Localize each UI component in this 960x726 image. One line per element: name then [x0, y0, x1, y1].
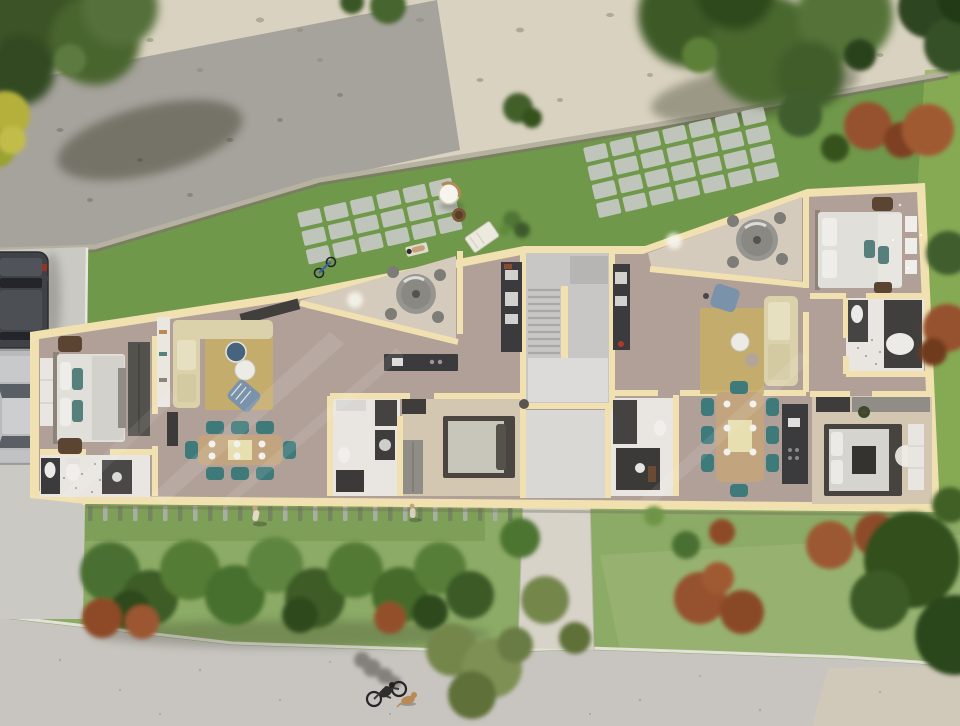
pillow-teal	[72, 368, 83, 390]
pillow-teal	[72, 400, 83, 422]
pillow	[831, 460, 843, 484]
outdoor-chair	[727, 215, 739, 227]
tree-leaf-accent	[54, 44, 86, 76]
coffee-table-taupe	[745, 353, 759, 367]
chair-teal	[701, 398, 714, 416]
suv-red-detail	[42, 264, 47, 271]
toilet	[66, 463, 80, 481]
coffee-table-white	[731, 333, 749, 351]
wardrobe-dark	[816, 397, 850, 412]
bed	[448, 421, 504, 473]
floor-lamp	[703, 293, 709, 299]
stair-divider-wall	[561, 286, 568, 358]
chair-teal	[256, 421, 274, 434]
tub	[886, 333, 914, 355]
stairwell	[523, 250, 612, 406]
outdoor-chair	[432, 311, 444, 323]
chair-teal	[730, 484, 748, 497]
pillow	[60, 362, 71, 390]
cabinet-dark	[402, 399, 426, 414]
toilet	[654, 420, 666, 436]
stair-landing	[528, 358, 608, 402]
armchair-brown	[58, 438, 82, 454]
dresser	[908, 424, 924, 490]
ceiling-light	[666, 233, 682, 249]
chair-teal	[766, 398, 779, 416]
street-corner-tan	[812, 666, 960, 726]
sink	[45, 462, 56, 478]
kitchen-counter	[782, 404, 808, 484]
pillow	[822, 218, 837, 246]
basin	[851, 305, 863, 323]
outdoor-chair	[434, 269, 446, 281]
stool-brown	[874, 282, 892, 293]
hanging-egg-chair	[439, 183, 459, 204]
pillow-teal	[878, 246, 889, 264]
storage-basket	[452, 208, 466, 222]
pillow-teal	[864, 240, 875, 258]
stool	[519, 399, 529, 409]
bed-bench	[118, 368, 126, 428]
pillow	[822, 250, 837, 278]
outdoor-chair	[387, 266, 399, 278]
ceiling-light	[347, 292, 363, 308]
pillow	[496, 424, 506, 470]
chair-teal	[231, 467, 249, 480]
outdoor-chair	[776, 253, 788, 265]
kitchen-right	[613, 264, 630, 350]
outdoor-chair	[774, 212, 786, 224]
armchair-brown	[58, 336, 82, 352]
bedroom-right2	[816, 397, 930, 496]
floor-plan-render	[0, 0, 960, 726]
coffee-table-white	[235, 360, 255, 380]
basin	[635, 463, 645, 473]
chair-teal	[730, 381, 748, 394]
shower	[613, 400, 637, 444]
outdoor-chair	[727, 256, 739, 268]
entry-hall-floor	[525, 410, 606, 498]
chair-teal	[766, 454, 779, 472]
closet-white	[40, 358, 53, 426]
throw-dark	[852, 446, 876, 474]
rug	[700, 308, 764, 394]
armchair-brown	[872, 197, 893, 211]
tv-unit	[167, 412, 178, 446]
outdoor-chair	[385, 308, 397, 320]
cabinet	[336, 470, 364, 492]
pillow	[831, 432, 843, 456]
shower	[375, 400, 397, 426]
coffee-table-navy	[226, 342, 246, 362]
toilet	[338, 447, 350, 463]
chair-teal	[206, 467, 224, 480]
chair-teal	[766, 426, 779, 444]
wall-frames	[905, 216, 917, 232]
pillow	[60, 398, 71, 426]
